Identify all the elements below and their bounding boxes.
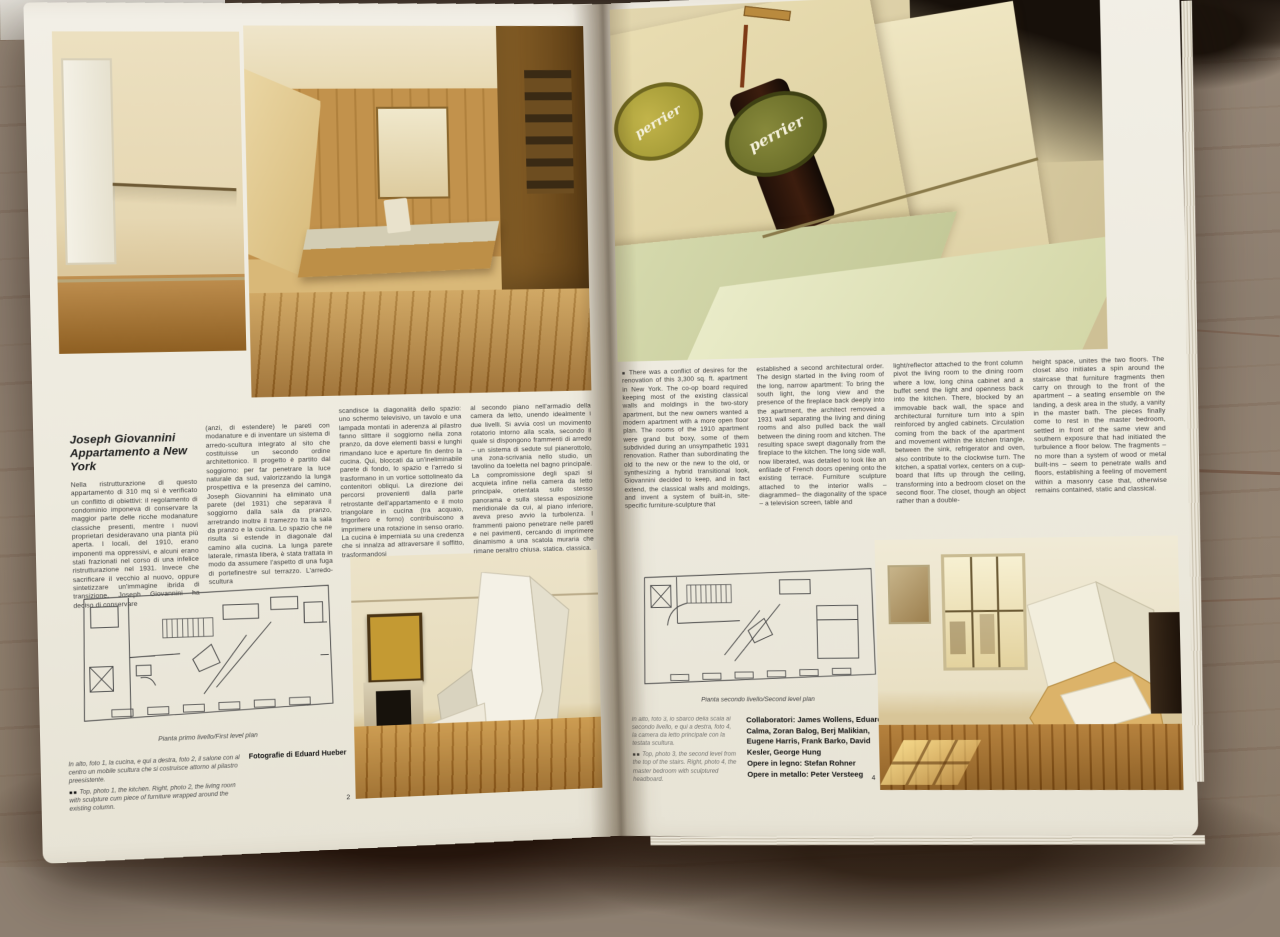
column-4: al secondo piano nell'armadio della came…: [470, 402, 594, 574]
caption-marker: ■■: [632, 752, 640, 758]
fireplace-opening: [376, 690, 412, 725]
caption-marker: ■■: [69, 790, 78, 797]
caption-english: ■■ Top, photo 1, the kitchen. Right, pho…: [69, 782, 241, 815]
column-2: (anzi, di estendere) le pareti con modan…: [205, 408, 333, 583]
article-paragraph: al secondo piano nell'armadio della came…: [470, 402, 594, 556]
city-silhouette: [950, 621, 966, 654]
caption-english: ■■ Top, photo 3, the second level from t…: [632, 751, 737, 784]
left-page[interactable]: Joseph Giovannini Appartamento a New Yor…: [24, 2, 621, 864]
second-level-plan-block: Pianta secondo livello/Second level plan…: [628, 548, 888, 784]
column-1: Joseph Giovannini Appartamento a New Yor…: [69, 411, 199, 587]
collaborators-names: Collaboratori: James Wollens, Eduard Cal…: [746, 715, 888, 759]
wall-artwork: [887, 564, 931, 624]
photo-1-kitchen: [243, 26, 591, 398]
oven-stack: [524, 70, 574, 194]
open-magazine-spread[interactable]: Joseph Giovannini Appartamento a New Yor…: [41, 0, 1182, 849]
photo-4-master-bedroom: [875, 535, 1184, 790]
column-1: ■ There was a conflict of desires for th…: [622, 366, 751, 547]
photo-2-wrap: 2: [350, 549, 602, 798]
caption-row: In alto, foto 1, la cucina, e qui a dest…: [68, 749, 347, 814]
gold-artwork: [367, 613, 425, 684]
right-page[interactable]: perrier perrier ■ There was a conflict o…: [602, 0, 1199, 838]
straw: [743, 6, 791, 21]
kitchen-opening: [376, 107, 450, 200]
perrier-label-left: perrier: [610, 68, 716, 176]
article-paragraph: height space, unites the two floors. The…: [1032, 356, 1167, 496]
light-grid-line: [890, 761, 969, 764]
white-door: [61, 58, 117, 265]
caption-row: In alto, foto 3, lo sbarco della scala a…: [632, 715, 889, 784]
photo-4-wrap: 4: [875, 535, 1184, 790]
photo-2-living-room-sculpture: [350, 549, 602, 798]
pouring-liquid: [740, 24, 748, 87]
kitchen-floor-boards: [249, 288, 591, 397]
perrier-brand-text: perrier: [632, 102, 684, 142]
photographer-credit: Fotografie di Eduard Hueber: [249, 749, 348, 806]
caption-italian: In alto, foto 1, la cucina, e qui a dest…: [68, 754, 240, 786]
photo-1b-living-corner: [52, 31, 246, 354]
plan-caption: Pianta secondo livello/Second level plan: [631, 695, 886, 703]
perrier-brand-text: perrier: [745, 111, 807, 155]
photo-4-number: 4: [872, 775, 876, 782]
photo-captions: In alto, foto 1, la cucina, e qui a dest…: [68, 754, 241, 815]
dark-wardrobe: [1149, 612, 1182, 714]
caption-italian: In alto, foto 3, lo sbarco della scala a…: [632, 715, 737, 748]
column-3: scandisce la diagonalità dello spazio: u…: [339, 405, 465, 578]
article-paragraph: light/reflector attached to the front co…: [893, 359, 1026, 506]
page-stack-edge-bottom[interactable]: [650, 835, 1205, 845]
photo-3-landing-perrier-art: perrier perrier: [610, 0, 1108, 362]
column-4: height space, unites the two floors. The…: [1032, 356, 1168, 542]
paragraph-marker: ■: [622, 371, 626, 377]
article-title: Joseph Giovannini Appartamento a New Yor…: [70, 431, 197, 474]
wood-floor: [354, 716, 602, 799]
article-paragraph: ■ There was a conflict of desires for th…: [622, 366, 751, 511]
article-paragraph: established a second architectural order…: [756, 363, 887, 509]
counter-object: [383, 198, 411, 234]
column-2: established a second architectural order…: [756, 363, 888, 546]
column-3: light/reflector attached to the front co…: [893, 359, 1027, 543]
photo-captions: In alto, foto 3, lo sbarco della scala a…: [632, 715, 738, 783]
city-silhouette: [980, 614, 995, 654]
article-paragraph: scandisce la diagonalità dello spazio: u…: [339, 405, 465, 560]
second-level-plan: [628, 548, 886, 694]
woodwork-credit: Opere in legno: Stefan Rohner: [747, 758, 888, 769]
wood-floor: [57, 274, 246, 354]
metalwork-credit: Opere in metallo: Peter Versteeg: [747, 769, 888, 780]
window-mullion: [970, 557, 975, 668]
first-level-plan: [64, 560, 346, 736]
first-level-plan-block: Pianta primo livello/First level plan In…: [64, 560, 347, 814]
photo-2-number: 2: [346, 794, 350, 801]
english-article-text: ■ There was a conflict of desires for th…: [622, 356, 1168, 548]
collaborators-block: Collaboratori: James Wollens, Eduard Cal…: [746, 715, 888, 784]
